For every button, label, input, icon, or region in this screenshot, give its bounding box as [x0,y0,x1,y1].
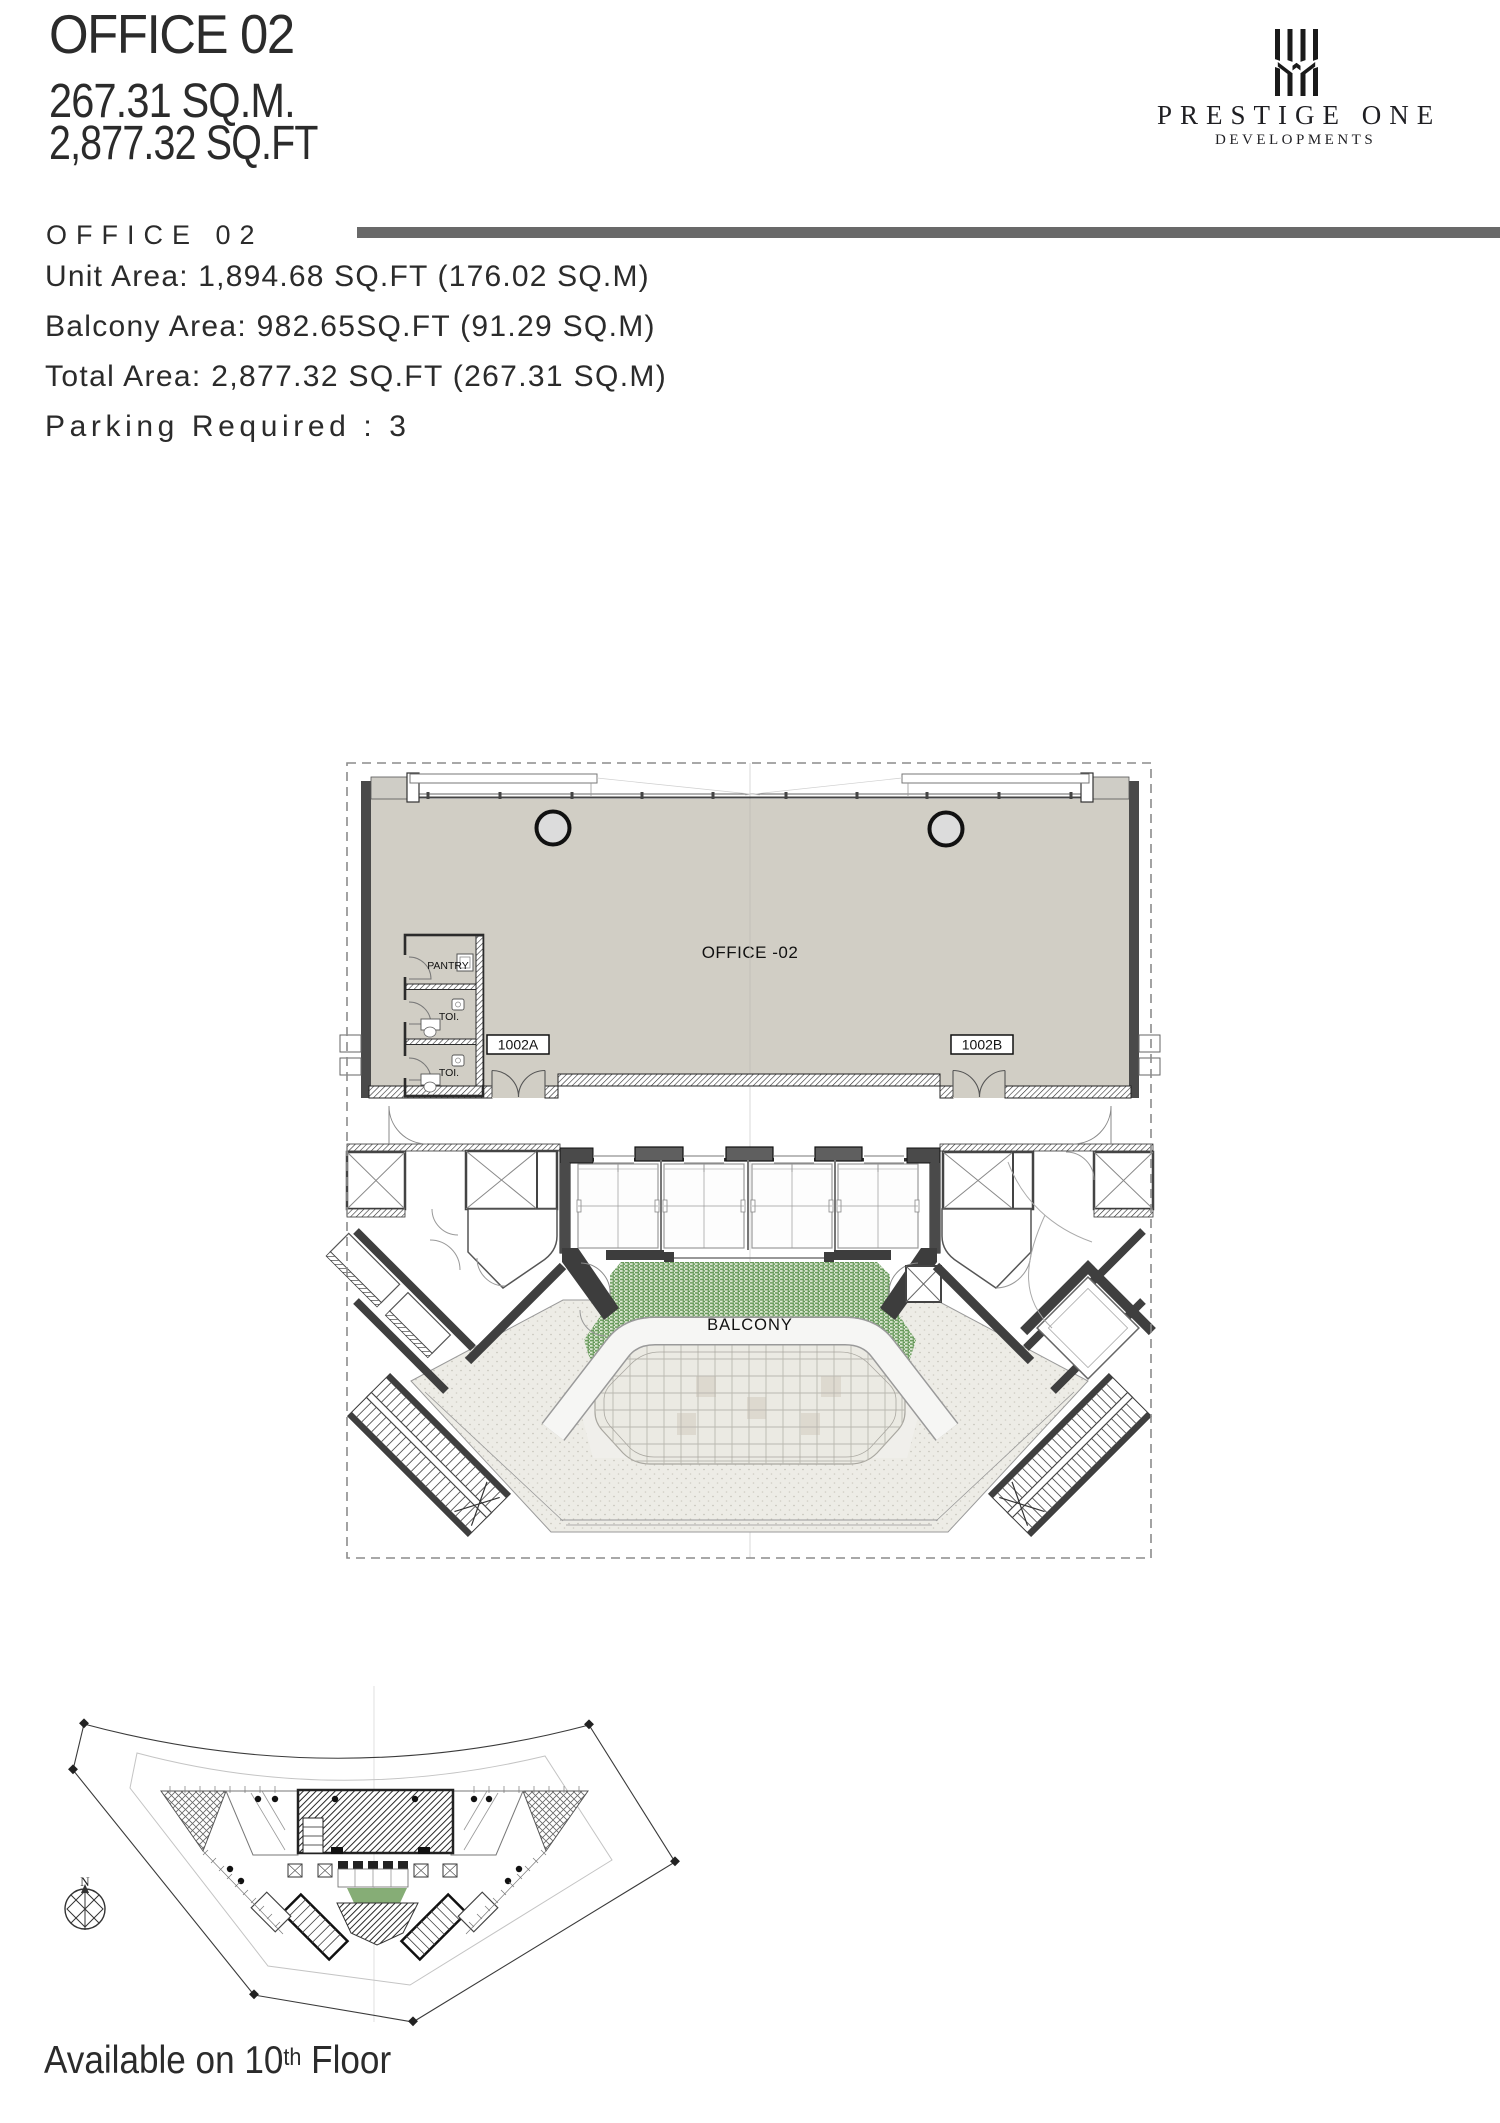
svg-text:1002B: 1002B [962,1037,1002,1053]
svg-text:TOI.: TOI. [439,1067,459,1079]
svg-text:BALCONY: BALCONY [707,1316,793,1334]
svg-text:PANTRY: PANTRY [427,960,469,972]
svg-text:N: N [80,1874,90,1889]
svg-text:TOI.: TOI. [439,1011,459,1023]
svg-text:1002A: 1002A [498,1037,539,1053]
